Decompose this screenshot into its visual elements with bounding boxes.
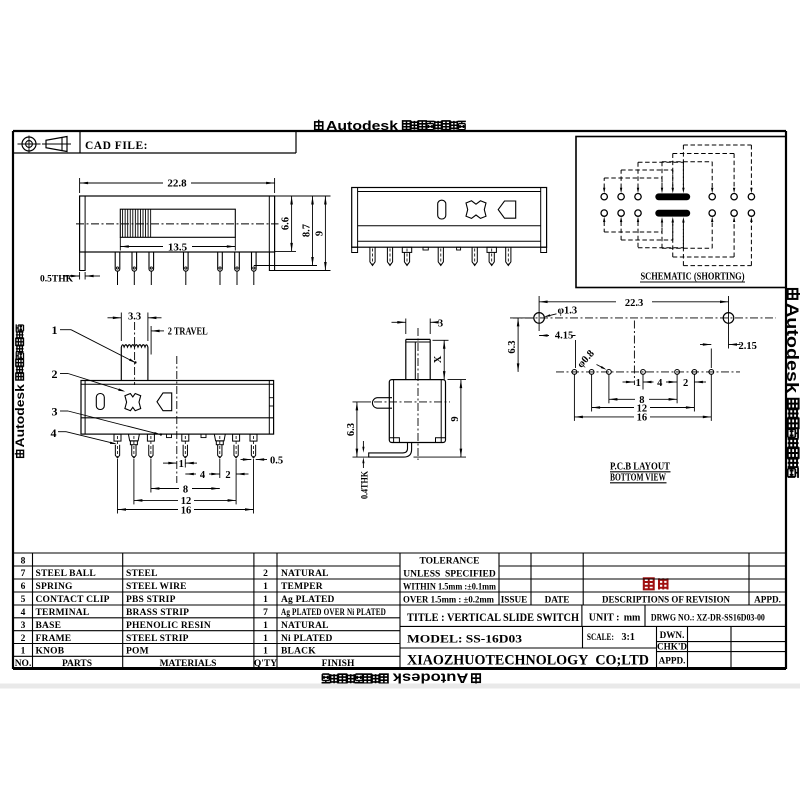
svg-text:16: 16 [637, 413, 648, 424]
svg-text:MODEL: SS-16D03: MODEL: SS-16D03 [407, 632, 522, 646]
svg-text:3:1: 3:1 [622, 632, 635, 643]
svg-text:DATE: DATE [545, 594, 570, 604]
svg-text:BASE: BASE [36, 621, 62, 631]
svg-text:PBS STRIP: PBS STRIP [126, 595, 176, 605]
svg-text:SPRING: SPRING [36, 582, 74, 592]
svg-text:WITHIN 1.5mm :±0.1mm: WITHIN 1.5mm :±0.1mm [403, 581, 496, 591]
svg-text:Autodesk: Autodesk [14, 383, 27, 447]
svg-text:PARTS: PARTS [62, 659, 92, 669]
svg-text:BRASS STRIP: BRASS STRIP [126, 608, 189, 618]
svg-text:UNIT :: UNIT : [589, 613, 620, 624]
svg-text:3: 3 [21, 621, 26, 631]
svg-text:NO.: NO. [15, 659, 32, 669]
svg-text:6.3: 6.3 [507, 340, 518, 353]
svg-text:1: 1 [636, 378, 641, 389]
svg-text:7: 7 [21, 569, 26, 579]
svg-text:1: 1 [263, 647, 268, 657]
svg-text:1: 1 [263, 634, 268, 644]
svg-text:1: 1 [52, 323, 58, 337]
svg-text:8.7: 8.7 [302, 224, 313, 237]
svg-text:Autodesk: Autodesk [326, 118, 399, 133]
svg-text:BLACK: BLACK [281, 647, 316, 657]
svg-text:STEEL STRIP: STEEL STRIP [126, 634, 189, 644]
svg-text:DWN.: DWN. [660, 630, 685, 640]
svg-text:XIAOZHUOTECHNOLOGY CO;LTD: XIAOZHUOTECHNOLOGY CO;LTD [407, 653, 649, 669]
svg-text:ISSUE: ISSUE [501, 594, 528, 604]
svg-text:NATURAL: NATURAL [281, 621, 329, 631]
svg-text:DRWG NO.: XZ-DR-SS16D03-00: DRWG NO.: XZ-DR-SS16D03-00 [651, 613, 765, 624]
svg-text:OVER 1.5mm : ±0.2mm: OVER 1.5mm : ±0.2mm [403, 594, 494, 604]
svg-text:KNOB: KNOB [36, 647, 65, 657]
svg-text:6.6: 6.6 [281, 217, 292, 230]
svg-text:2: 2 [263, 569, 268, 579]
svg-text:6: 6 [21, 582, 26, 592]
svg-text:PHENOLIC RESIN: PHENOLIC RESIN [126, 621, 211, 631]
svg-text:BOTTOM VIEW: BOTTOM VIEW [610, 472, 666, 484]
svg-text:2: 2 [52, 367, 58, 381]
svg-text:2 TRAVEL: 2 TRAVEL [168, 327, 208, 338]
svg-text:Q'TY: Q'TY [254, 659, 277, 669]
svg-text:POM: POM [126, 647, 149, 657]
svg-text:9: 9 [314, 231, 325, 236]
svg-text:CAD FILE:: CAD FILE: [85, 140, 148, 152]
svg-text:5: 5 [21, 595, 26, 605]
svg-text:Ag PLATED: Ag PLATED [281, 595, 335, 605]
svg-text:4: 4 [657, 378, 663, 389]
svg-text:16: 16 [181, 505, 192, 516]
svg-text:φ1.3: φ1.3 [558, 306, 578, 317]
svg-text:CHK'D: CHK'D [657, 642, 687, 652]
svg-text:STEEL: STEEL [126, 569, 158, 579]
svg-text:9: 9 [450, 416, 461, 421]
svg-text:8: 8 [183, 484, 188, 495]
svg-text:4.15: 4.15 [555, 331, 573, 342]
svg-text:4: 4 [21, 608, 26, 618]
svg-text:8: 8 [21, 557, 26, 567]
svg-text:Autodesk: Autodesk [783, 303, 800, 394]
svg-text:TEMPER: TEMPER [281, 582, 323, 592]
svg-text:X: X [433, 355, 444, 363]
svg-text:APPD.: APPD. [659, 656, 686, 666]
svg-text:4: 4 [200, 470, 206, 481]
svg-text:CONTACT CLIP: CONTACT CLIP [36, 595, 110, 605]
svg-text:Ag PLATED OVER Ni PLATED: Ag PLATED OVER Ni PLATED [281, 608, 386, 618]
svg-text:TERMINAL: TERMINAL [36, 608, 90, 618]
svg-text:2: 2 [683, 378, 688, 389]
svg-text:2: 2 [225, 470, 230, 481]
svg-text:FRAME: FRAME [36, 634, 72, 644]
svg-text:FINISH: FINISH [322, 659, 355, 669]
svg-text:DESCRIPTIONS OF REVISION: DESCRIPTIONS OF REVISION [602, 594, 730, 604]
svg-text:1: 1 [263, 621, 268, 631]
svg-text:7: 7 [263, 608, 268, 618]
svg-text:APPD.: APPD. [754, 594, 781, 604]
svg-text:0.5: 0.5 [270, 456, 283, 467]
svg-text:22.3: 22.3 [625, 298, 643, 309]
svg-text:STEEL WIRE: STEEL WIRE [126, 582, 187, 592]
svg-text:1: 1 [263, 595, 268, 605]
svg-text:NATURAL: NATURAL [281, 569, 329, 579]
svg-text:STEEL BALL: STEEL BALL [36, 569, 96, 579]
svg-text:2.15: 2.15 [739, 341, 757, 352]
svg-text:3: 3 [438, 319, 443, 330]
svg-text:2: 2 [21, 634, 26, 644]
svg-text:SCALE:: SCALE: [587, 632, 614, 643]
svg-text:1: 1 [179, 459, 184, 470]
svg-text:6.3: 6.3 [346, 423, 357, 436]
svg-text:1: 1 [21, 647, 26, 657]
svg-text:UNLESS SPECIFIED: UNLESS SPECIFIED [403, 570, 496, 580]
svg-text:13.5: 13.5 [168, 242, 188, 254]
svg-text:3.3: 3.3 [128, 312, 141, 323]
svg-text:TOLERANCE: TOLERANCE [419, 557, 479, 567]
svg-text:MATERIALS: MATERIALS [160, 659, 217, 669]
svg-text:0.4THK: 0.4THK [361, 470, 371, 499]
svg-text:1: 1 [263, 582, 268, 592]
svg-text:4: 4 [51, 426, 57, 440]
svg-text:Ni PLATED: Ni PLATED [281, 634, 333, 644]
svg-text:3: 3 [52, 405, 58, 419]
svg-text:TITLE : VERTICAL SLIDE SWITCH: TITLE : VERTICAL SLIDE SWITCH [407, 610, 580, 624]
svg-text:mm: mm [624, 613, 641, 624]
svg-text:SCHEMATIC (SHORTING): SCHEMATIC (SHORTING) [641, 271, 745, 283]
svg-text:22.8: 22.8 [167, 178, 187, 190]
